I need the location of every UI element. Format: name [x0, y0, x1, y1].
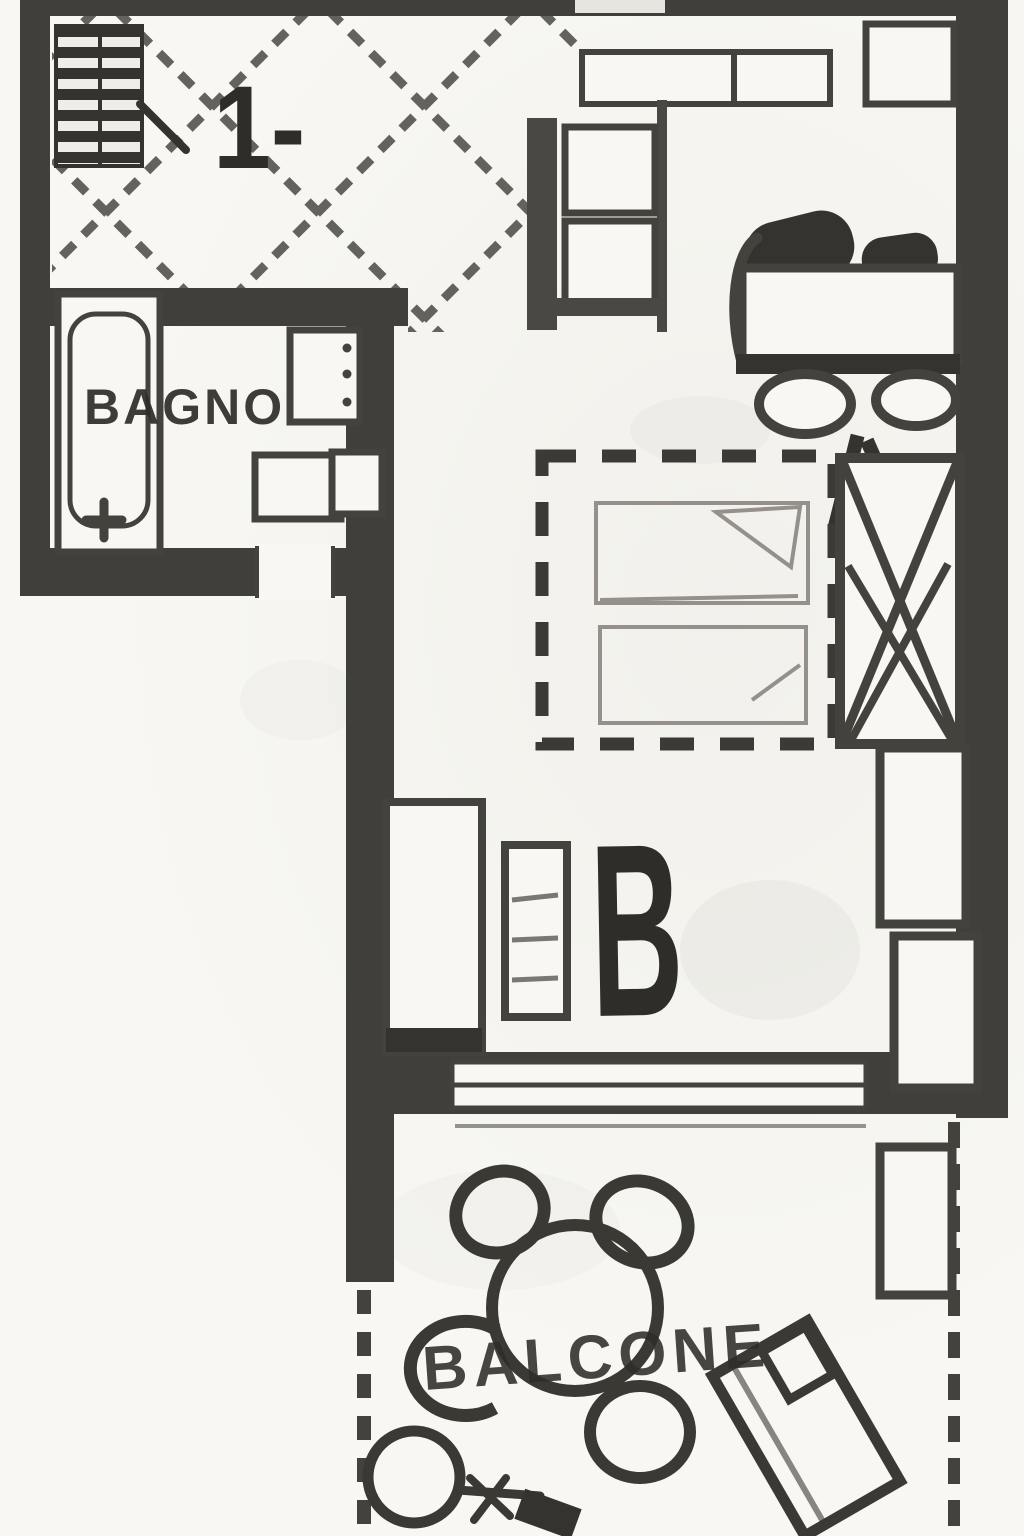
double-bed-dashed	[542, 456, 834, 744]
main-vertical-wall	[346, 288, 394, 1282]
sofa-body	[742, 268, 958, 360]
bidet	[255, 455, 341, 519]
balcony-window	[880, 1147, 952, 1295]
smudge	[240, 660, 360, 740]
bed-fold-line	[752, 665, 800, 700]
plant-scribble	[470, 1478, 510, 1520]
kitchen-appliance-1	[565, 127, 655, 213]
smudge	[680, 880, 860, 1020]
kitchen-unit	[527, 100, 667, 332]
door-gap	[255, 544, 335, 600]
sofa-foot-left	[759, 374, 851, 434]
top-wall-gap	[575, 0, 665, 13]
wardrobe-crossed	[840, 458, 960, 744]
bed-sketch	[596, 503, 808, 723]
bathroom-label: BAGNO	[84, 379, 285, 435]
door-frame-sill	[386, 1028, 482, 1052]
door-frame-box	[386, 802, 482, 1052]
bathroom-door-opening	[255, 544, 335, 600]
door-frame	[386, 802, 482, 1052]
room-mark-label: B	[588, 792, 685, 1068]
sofa-foot-right	[876, 374, 956, 426]
floor-plan-svg: 1- BAGNO B BALCONE	[0, 0, 1024, 1536]
top-wall	[20, 0, 1008, 16]
bed-1	[596, 503, 808, 603]
toilet-dot	[343, 370, 352, 379]
kitchen-bottom-band	[545, 298, 663, 316]
bed-2	[600, 627, 806, 723]
sliding-glass-door	[452, 1062, 866, 1126]
radiator	[505, 845, 567, 1017]
bed-divider	[600, 596, 798, 600]
unit-label: 1-	[213, 61, 305, 194]
plant-shadow-blob	[514, 1489, 581, 1536]
bed-pillow	[716, 507, 800, 567]
toilet-dot	[343, 344, 352, 353]
floor-plan-scan: 1- BAGNO B BALCONE	[0, 0, 1024, 1536]
potted-plant	[368, 1431, 460, 1523]
balcony-chair-bottom	[590, 1386, 690, 1478]
square-cabinet	[866, 24, 954, 104]
radiator-box	[505, 845, 567, 1017]
kitchen-appliance-2	[565, 221, 655, 303]
long-cabinet	[582, 52, 830, 104]
side-cabinets	[880, 748, 978, 1088]
washbasin	[332, 452, 382, 514]
toilet-dot	[343, 398, 352, 407]
side-cabinet-1	[880, 748, 966, 924]
side-cabinet-2	[894, 936, 978, 1088]
